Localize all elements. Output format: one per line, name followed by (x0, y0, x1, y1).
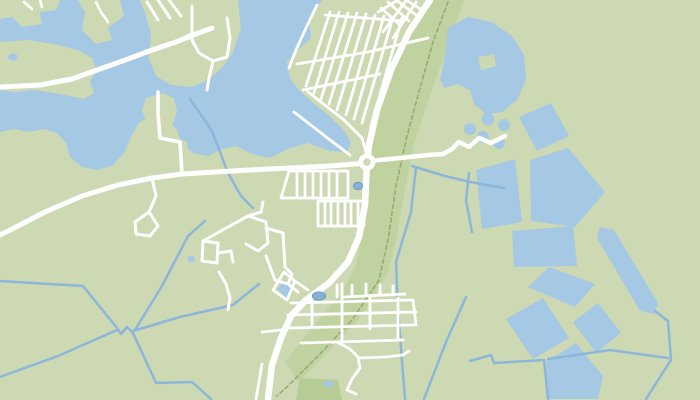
pond-village-dark (313, 292, 326, 300)
map-viewport[interactable] (0, 0, 700, 400)
forest-south-patch (296, 378, 342, 400)
basin-mid-4 (512, 226, 577, 267)
roundabout-center (363, 158, 371, 166)
pond-shore-west (8, 54, 18, 61)
pond-cluster-1 (464, 123, 476, 135)
pond-cluster-3 (498, 119, 510, 131)
pond-cluster-2 (482, 113, 495, 126)
pond-village-tiny (323, 381, 334, 387)
basin-mid-2 (476, 159, 522, 229)
pond-grid-dark (354, 183, 363, 190)
map-canvas[interactable] (0, 0, 700, 400)
pond-industrial (187, 256, 195, 262)
